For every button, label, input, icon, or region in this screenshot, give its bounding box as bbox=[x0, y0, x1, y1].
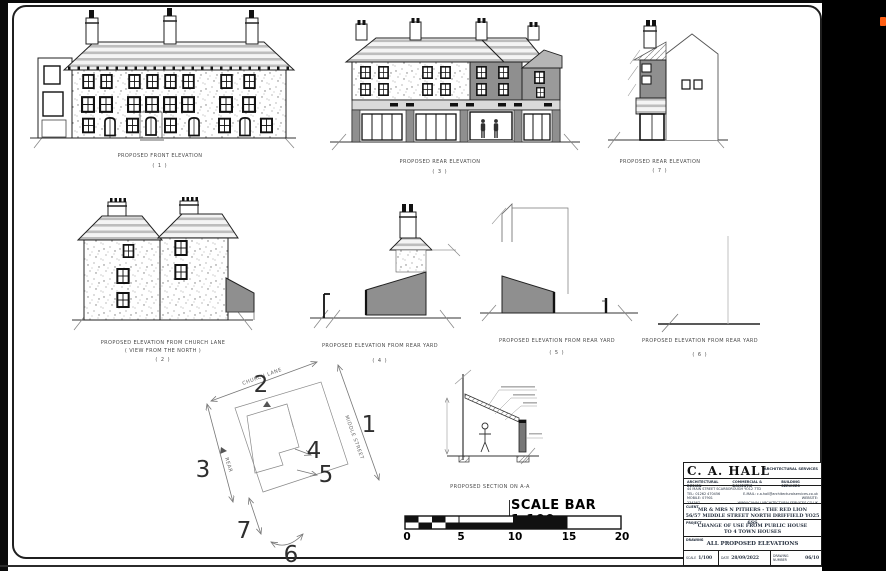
gray-wedge-wall bbox=[502, 276, 554, 313]
drawing-viewer: PROPOSED FRONT ELEVATION ( 1 ) bbox=[0, 0, 886, 571]
rear-yard-5-drawing bbox=[478, 198, 643, 338]
project-line2: TO 4 TOWN HOUSES bbox=[684, 529, 821, 535]
rear-yard-4-drawing bbox=[308, 198, 463, 338]
scale-tick-0: 0 bbox=[403, 531, 410, 543]
side-elevation-label: PROPOSED REAR ELEVATION bbox=[585, 159, 735, 167]
drawing-number-value: 06/10 bbox=[805, 556, 819, 561]
title-block-drawing-row: DRAWING ALL PROPOSED ELEVATIONS bbox=[684, 536, 821, 550]
title-block: C. A. HALL ARCHITECTURAL SERVICES ARCHIT… bbox=[683, 462, 822, 566]
scale-bar: SCALE BAR 1:100 0 5 10 15 20 bbox=[403, 498, 638, 548]
front-windows-upper bbox=[83, 75, 255, 88]
gray-lean-to bbox=[366, 272, 426, 315]
plan-number-2: 2 bbox=[254, 372, 269, 398]
side-elevation-number: ( 7 ) bbox=[585, 168, 735, 174]
service-1: ARCHITECTURAL DESIGN bbox=[687, 480, 732, 484]
rear-elevation-label: PROPOSED REAR ELEVATION bbox=[340, 159, 540, 167]
service-3: BUILDING SERVICES bbox=[781, 480, 818, 484]
building-outline bbox=[247, 404, 299, 473]
church-lane-elevation-drawing bbox=[70, 198, 255, 338]
scale-tick-15: 15 bbox=[562, 531, 577, 543]
title-block-client-row: CLIENT MR & MRS N PITHERS - THE RED LION… bbox=[684, 503, 821, 519]
title-block-project-row: PROJECT CHANGE OF USE FROM PUBLIC HOUSE … bbox=[684, 519, 821, 536]
project-label: PROJECT bbox=[686, 521, 701, 525]
rear-yard-5-number: ( 5 ) bbox=[482, 350, 632, 356]
company-suffix: ARCHITECTURAL SERVICES bbox=[764, 467, 818, 471]
left-edge-bar bbox=[0, 0, 8, 571]
front-windows-middle bbox=[82, 97, 255, 112]
scale-label: SCALE bbox=[686, 556, 696, 560]
scale-tick-5: 5 bbox=[457, 531, 464, 543]
plan-number-6: 6 bbox=[284, 542, 299, 568]
front-elevation-drawing bbox=[28, 6, 298, 154]
title-block-contact-row: 44 MAIN STREET SCARBOROUGH YO12 7TD TEL:… bbox=[684, 485, 821, 503]
scale-tick-20: 20 bbox=[615, 531, 630, 543]
banded-strip bbox=[636, 98, 666, 114]
gray-extension bbox=[226, 278, 254, 312]
scale-value: 1/100 bbox=[698, 556, 712, 561]
side-elevation-drawing bbox=[606, 20, 731, 160]
rear-yard-6-drawing bbox=[648, 228, 798, 348]
church-lane-title: PROPOSED ELEVATION FROM CHURCH LANE bbox=[88, 340, 238, 348]
rear-elevation-number: ( 3 ) bbox=[340, 169, 540, 175]
section-marker-a bbox=[263, 401, 271, 407]
front-chimneys bbox=[85, 8, 259, 44]
rear-yard-6-label: PROPOSED ELEVATION FROM REAR YARD bbox=[625, 338, 775, 346]
title-block-meta-row: SCALE 1/100 DATE 28/09/2022 DRAWING NUMB… bbox=[684, 550, 821, 565]
section-drawing bbox=[433, 368, 548, 486]
dim-line-3 bbox=[207, 404, 233, 502]
date-label: DATE bbox=[721, 556, 729, 560]
section-marker-b bbox=[220, 447, 227, 454]
key-plan: CHURCH LANE MIDDLE STREET REAR 2 1 3 4 5… bbox=[183, 352, 408, 567]
front-elevation-label: PROPOSED FRONT ELEVATION bbox=[60, 153, 260, 161]
title-block-company-row: C. A. HALL ARCHITECTURAL SERVICES bbox=[684, 463, 821, 478]
section-label: PROPOSED SECTION ON A-A bbox=[420, 484, 560, 492]
plan-number-5: 5 bbox=[319, 462, 334, 488]
plan-number-3: 3 bbox=[196, 457, 211, 483]
rear-elevation-drawing bbox=[330, 20, 580, 160]
church-lane-chimneys bbox=[107, 197, 199, 216]
dim-line-5 bbox=[297, 470, 317, 475]
plan-number-4: 4 bbox=[307, 438, 322, 464]
gable-outline bbox=[666, 34, 718, 140]
scale-bar-graphic bbox=[403, 515, 629, 530]
person-figure bbox=[479, 423, 491, 452]
date-value: 28/09/2022 bbox=[731, 556, 759, 561]
rear-yard-6-number: ( 6 ) bbox=[625, 352, 775, 358]
plan-number-7: 7 bbox=[237, 518, 252, 544]
yard-chimney bbox=[400, 212, 416, 238]
rear-yard-4-label: PROPOSED ELEVATION FROM REAR YARD bbox=[305, 343, 455, 351]
section-wall bbox=[519, 420, 526, 452]
rear-yard-5-label: PROPOSED ELEVATION FROM REAR YARD bbox=[482, 338, 632, 346]
drawing-value: ALL PROPOSED ELEVATIONS bbox=[684, 541, 821, 548]
front-elevation-number: ( 1 ) bbox=[60, 163, 260, 169]
right-panel bbox=[822, 0, 886, 571]
rear-chimneys bbox=[356, 18, 539, 40]
drawing-number-label: DRAWING NUMBER bbox=[773, 554, 803, 562]
scale-tick-10: 10 bbox=[508, 531, 523, 543]
rear-shopfront bbox=[352, 110, 560, 142]
client-label: CLIENT bbox=[686, 505, 699, 509]
drawing-label: DRAWING bbox=[686, 538, 703, 542]
plan-number-1: 1 bbox=[362, 412, 377, 438]
service-2: COMMERCIAL & DOMESTIC bbox=[732, 480, 781, 484]
title-block-services-row: ARCHITECTURAL DESIGN COMMERCIAL & DOMEST… bbox=[684, 478, 821, 485]
side-chimney bbox=[644, 26, 656, 48]
scrollbar-marker[interactable] bbox=[880, 17, 886, 26]
top-edge-bar bbox=[0, 0, 886, 3]
front-roof bbox=[64, 42, 294, 70]
